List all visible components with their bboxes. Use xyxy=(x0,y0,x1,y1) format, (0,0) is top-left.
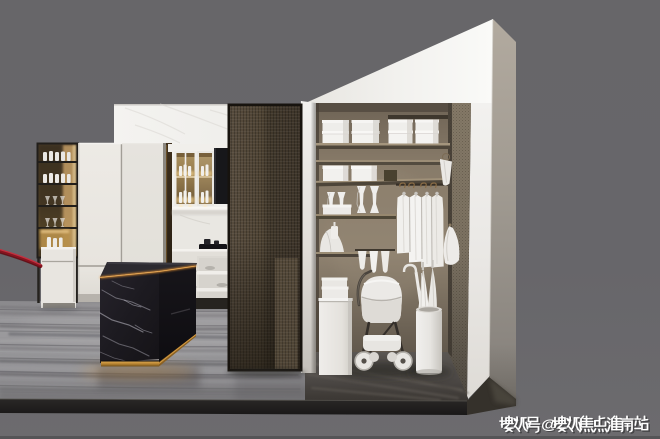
svg-text:@: @ xyxy=(541,417,558,432)
